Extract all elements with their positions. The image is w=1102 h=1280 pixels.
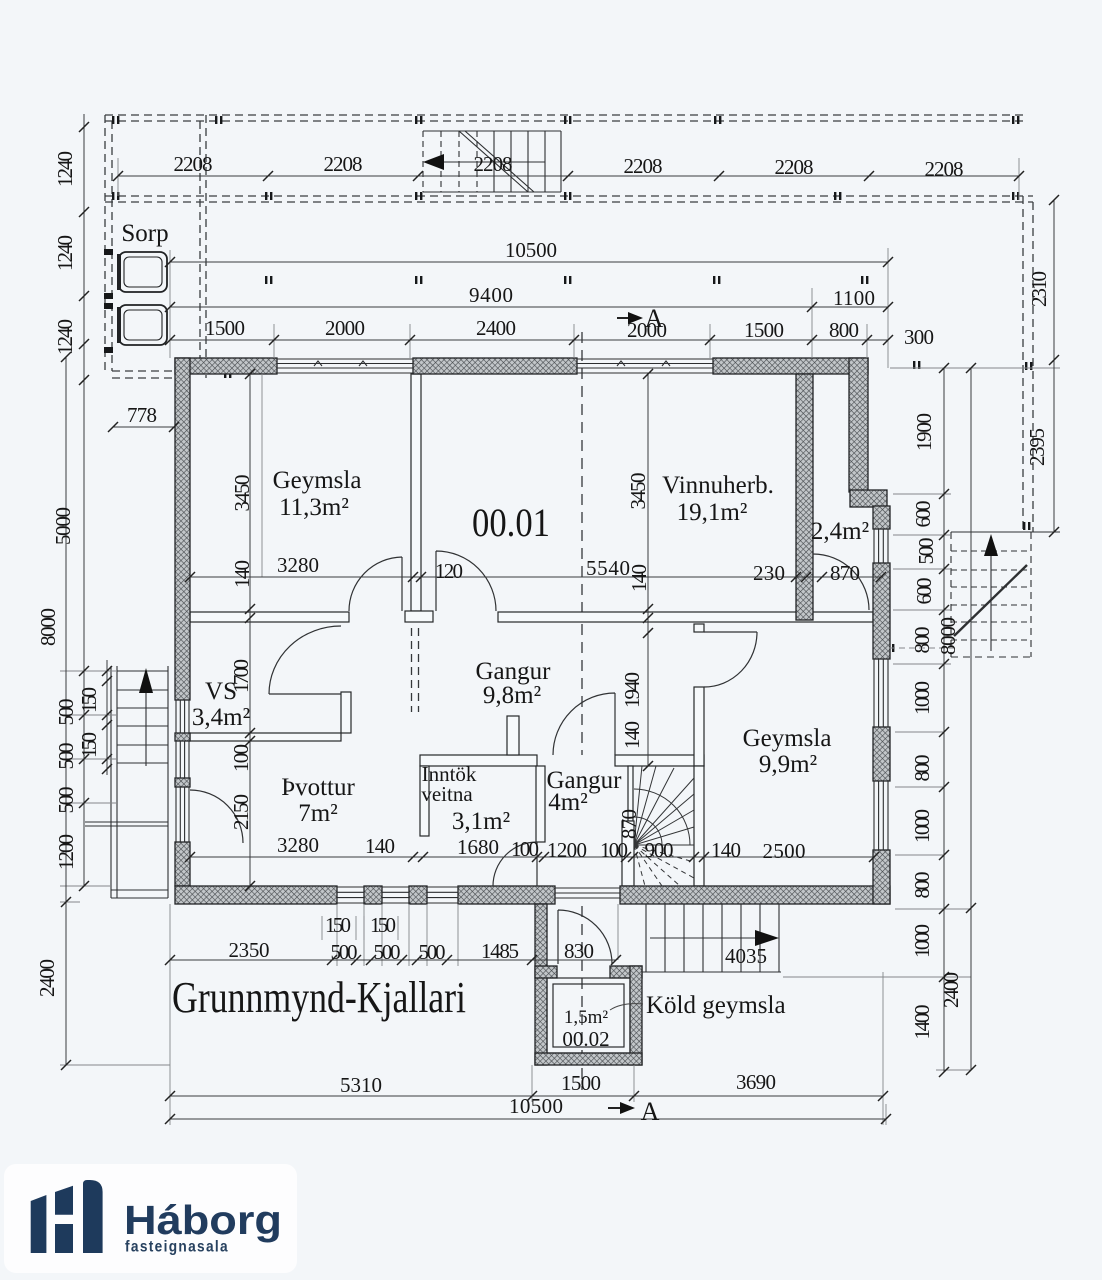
svg-text:1000: 1000 xyxy=(910,809,934,843)
svg-text:800: 800 xyxy=(829,318,859,342)
svg-text:3,1m²: 3,1m² xyxy=(452,808,510,835)
svg-text:870: 870 xyxy=(830,561,860,585)
svg-text:870: 870 xyxy=(617,809,641,839)
svg-text:3,4m²: 3,4m² xyxy=(192,704,250,731)
svg-text:1500: 1500 xyxy=(744,318,784,342)
svg-text:500: 500 xyxy=(374,940,401,964)
svg-text:3450: 3450 xyxy=(230,475,254,512)
svg-text:1485: 1485 xyxy=(481,939,519,963)
svg-text:1500: 1500 xyxy=(205,316,245,340)
svg-text:Köld geymsla: Köld geymsla xyxy=(646,992,786,1019)
svg-text:Gangur: Gangur xyxy=(476,658,552,685)
svg-text:2400: 2400 xyxy=(476,316,516,340)
svg-text:300: 300 xyxy=(904,325,934,349)
svg-text:7m²: 7m² xyxy=(298,800,337,827)
svg-text:VS: VS xyxy=(205,678,237,705)
svg-text:140: 140 xyxy=(627,564,651,592)
svg-text:100: 100 xyxy=(229,744,253,772)
svg-text:Þvottur: Þvottur xyxy=(281,774,355,801)
svg-text:120: 120 xyxy=(435,559,463,583)
svg-text:1,5m²: 1,5m² xyxy=(564,1007,609,1028)
svg-text:1240: 1240 xyxy=(53,235,77,271)
svg-text:Geymsla: Geymsla xyxy=(273,467,362,494)
svg-text:1940: 1940 xyxy=(620,672,644,708)
svg-text:2400: 2400 xyxy=(35,959,59,997)
svg-text:Háborg: Háborg xyxy=(124,1197,282,1243)
svg-text:1400: 1400 xyxy=(910,1005,934,1040)
svg-text:4035: 4035 xyxy=(725,944,767,968)
svg-text:9,8m²: 9,8m² xyxy=(483,682,541,709)
svg-text:1200: 1200 xyxy=(54,834,78,870)
svg-text:230: 230 xyxy=(753,561,785,585)
svg-text:5310: 5310 xyxy=(340,1073,382,1097)
svg-text:10500: 10500 xyxy=(509,1094,563,1118)
svg-text:1000: 1000 xyxy=(910,924,934,958)
svg-text:150: 150 xyxy=(77,687,101,713)
svg-text:2500: 2500 xyxy=(763,839,806,863)
svg-text:800: 800 xyxy=(910,755,934,782)
svg-text:2208: 2208 xyxy=(624,154,663,178)
svg-text:900: 900 xyxy=(645,838,674,862)
svg-text:8000: 8000 xyxy=(936,617,960,655)
svg-text:2150: 2150 xyxy=(229,794,253,830)
svg-text:600: 600 xyxy=(912,578,936,605)
svg-text:4m²: 4m² xyxy=(548,789,587,816)
svg-text:1200: 1200 xyxy=(547,838,587,862)
svg-text:1240: 1240 xyxy=(53,151,77,187)
svg-text:800: 800 xyxy=(910,872,934,899)
svg-text:2000: 2000 xyxy=(627,318,667,342)
svg-text:500: 500 xyxy=(54,743,78,770)
svg-text:00.02: 00.02 xyxy=(562,1027,609,1051)
svg-text:2,4m²: 2,4m² xyxy=(811,518,869,545)
svg-text:A: A xyxy=(641,1097,660,1126)
svg-text:2208: 2208 xyxy=(925,157,964,181)
svg-text:1000: 1000 xyxy=(910,681,934,715)
svg-text:3280: 3280 xyxy=(277,833,319,857)
svg-text:150: 150 xyxy=(77,732,101,758)
svg-text:830: 830 xyxy=(564,939,594,963)
svg-text:100: 100 xyxy=(511,837,539,861)
svg-text:500: 500 xyxy=(914,538,938,565)
svg-text:8000: 8000 xyxy=(36,608,60,646)
svg-text:Geymsla: Geymsla xyxy=(743,725,832,752)
svg-text:500: 500 xyxy=(54,699,78,726)
svg-text:1900: 1900 xyxy=(912,413,936,451)
svg-text:5540: 5540 xyxy=(586,556,630,580)
svg-text:Grunnmynd-Kjallari: Grunnmynd-Kjallari xyxy=(172,973,466,1022)
svg-text:150: 150 xyxy=(370,913,396,937)
svg-text:3450: 3450 xyxy=(626,473,650,510)
svg-text:500: 500 xyxy=(331,940,358,964)
svg-text:800: 800 xyxy=(910,627,934,654)
svg-text:1500: 1500 xyxy=(561,1071,601,1095)
svg-text:9400: 9400 xyxy=(469,283,513,307)
svg-text:2208: 2208 xyxy=(324,152,363,176)
svg-text:150: 150 xyxy=(325,913,351,937)
svg-text:1100: 1100 xyxy=(833,286,875,310)
svg-text:500: 500 xyxy=(54,787,78,814)
svg-text:2208: 2208 xyxy=(174,152,213,176)
svg-text:140: 140 xyxy=(620,721,644,749)
svg-text:2208: 2208 xyxy=(775,155,814,179)
svg-text:600: 600 xyxy=(911,501,935,528)
svg-text:2395: 2395 xyxy=(1025,428,1049,466)
svg-text:5000: 5000 xyxy=(51,507,75,545)
svg-text:140: 140 xyxy=(230,560,254,588)
svg-text:1240: 1240 xyxy=(53,319,77,355)
svg-text:10500: 10500 xyxy=(505,238,557,262)
svg-text:2400: 2400 xyxy=(939,972,963,1008)
svg-text:100: 100 xyxy=(600,838,628,862)
svg-text:11,3m²: 11,3m² xyxy=(279,494,349,521)
svg-text:19,1m²: 19,1m² xyxy=(677,499,748,526)
svg-text:778: 778 xyxy=(127,403,157,427)
svg-text:2000: 2000 xyxy=(325,316,365,340)
svg-text:3280: 3280 xyxy=(277,553,319,577)
svg-text:veitna: veitna xyxy=(421,782,473,806)
svg-text:140: 140 xyxy=(711,838,741,862)
svg-text:500: 500 xyxy=(419,940,446,964)
svg-text:2350: 2350 xyxy=(229,938,270,962)
svg-text:00.01: 00.01 xyxy=(472,500,550,545)
svg-text:140: 140 xyxy=(365,834,395,858)
svg-text:2208: 2208 xyxy=(474,152,513,176)
svg-text:9,9m²: 9,9m² xyxy=(759,751,817,778)
svg-text:2310: 2310 xyxy=(1027,271,1051,307)
svg-text:3690: 3690 xyxy=(736,1070,776,1094)
svg-text:Vinnuherb.: Vinnuherb. xyxy=(662,472,774,499)
svg-text:1680: 1680 xyxy=(457,835,499,859)
svg-text:fasteignasala: fasteignasala xyxy=(125,1239,229,1256)
svg-text:Sorp: Sorp xyxy=(121,220,168,247)
